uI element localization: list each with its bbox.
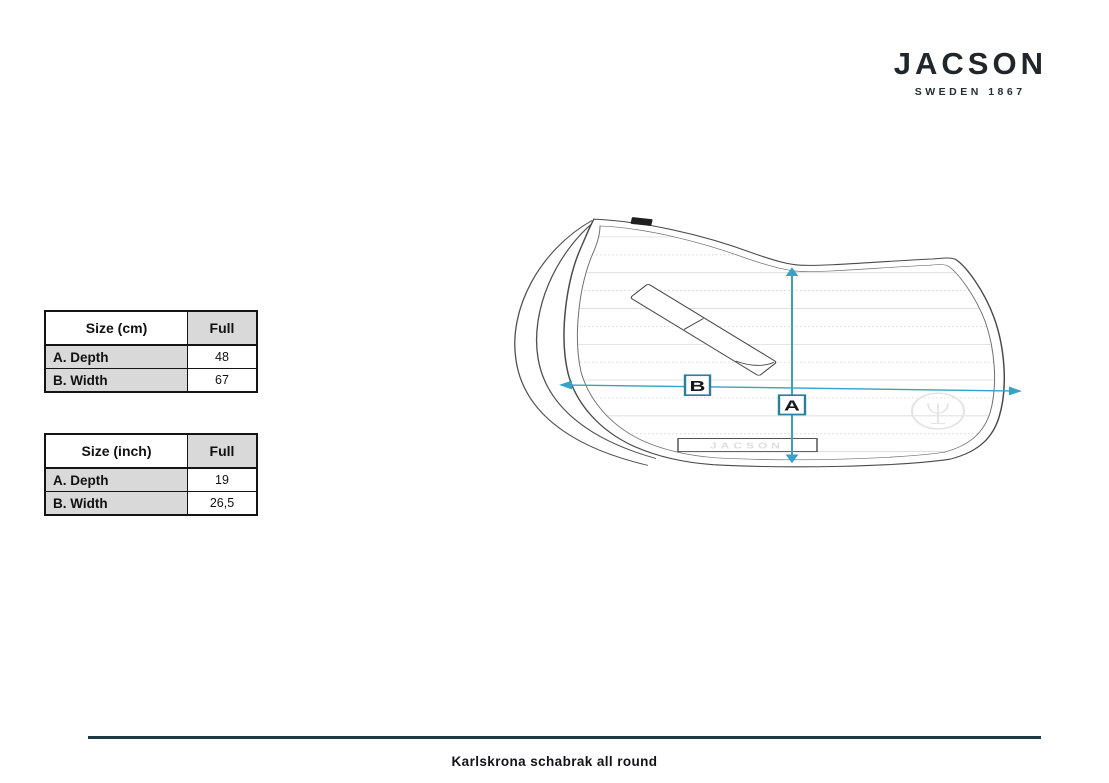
brand-logo: JACSON SWEDEN 1867 [894, 48, 1043, 98]
row-label-width: B. Width [45, 492, 188, 516]
footer-divider [88, 736, 1041, 739]
table-row: B. Width 26,5 [45, 492, 257, 516]
width-label: B [690, 378, 706, 395]
table-row: B. Width 67 [45, 369, 257, 393]
row-label-depth: A. Depth [45, 468, 188, 492]
brand-tagline: SWEDEN 1867 [894, 86, 1047, 98]
table-row: A. Depth 48 [45, 345, 257, 369]
table-header-row: Size (cm) Full [45, 311, 257, 345]
width-label-box: B [685, 375, 710, 395]
header-size-cm: Size (cm) [45, 311, 188, 345]
saddle-pad-diagram: JACSON B A [500, 195, 1060, 625]
depth-label: A [784, 398, 800, 415]
table-row: A. Depth 19 [45, 468, 257, 492]
row-label-width: B. Width [45, 369, 188, 393]
row-value-width: 26,5 [188, 492, 258, 516]
size-table-cm: Size (cm) Full A. Depth 48 B. Width 67 [44, 310, 258, 393]
table-header-row: Size (inch) Full [45, 434, 257, 468]
header-full: Full [188, 311, 258, 345]
row-value-width: 67 [188, 369, 258, 393]
row-value-depth: 48 [188, 345, 258, 369]
header-full: Full [188, 434, 258, 468]
size-table-inch: Size (inch) Full A. Depth 19 B. Width 26… [44, 433, 258, 516]
header-size-inch: Size (inch) [45, 434, 188, 468]
product-caption: Karlskrona schabrak all round [0, 754, 1109, 769]
brand-name: JACSON [894, 48, 1047, 79]
row-value-depth: 19 [188, 468, 258, 492]
row-label-depth: A. Depth [45, 345, 188, 369]
label-patch-text: JACSON [710, 442, 784, 451]
depth-label-box: A [779, 395, 805, 414]
page: { "brand": { "name": "JACSON", "tagline"… [0, 0, 1109, 783]
label-patch: JACSON [678, 439, 817, 452]
